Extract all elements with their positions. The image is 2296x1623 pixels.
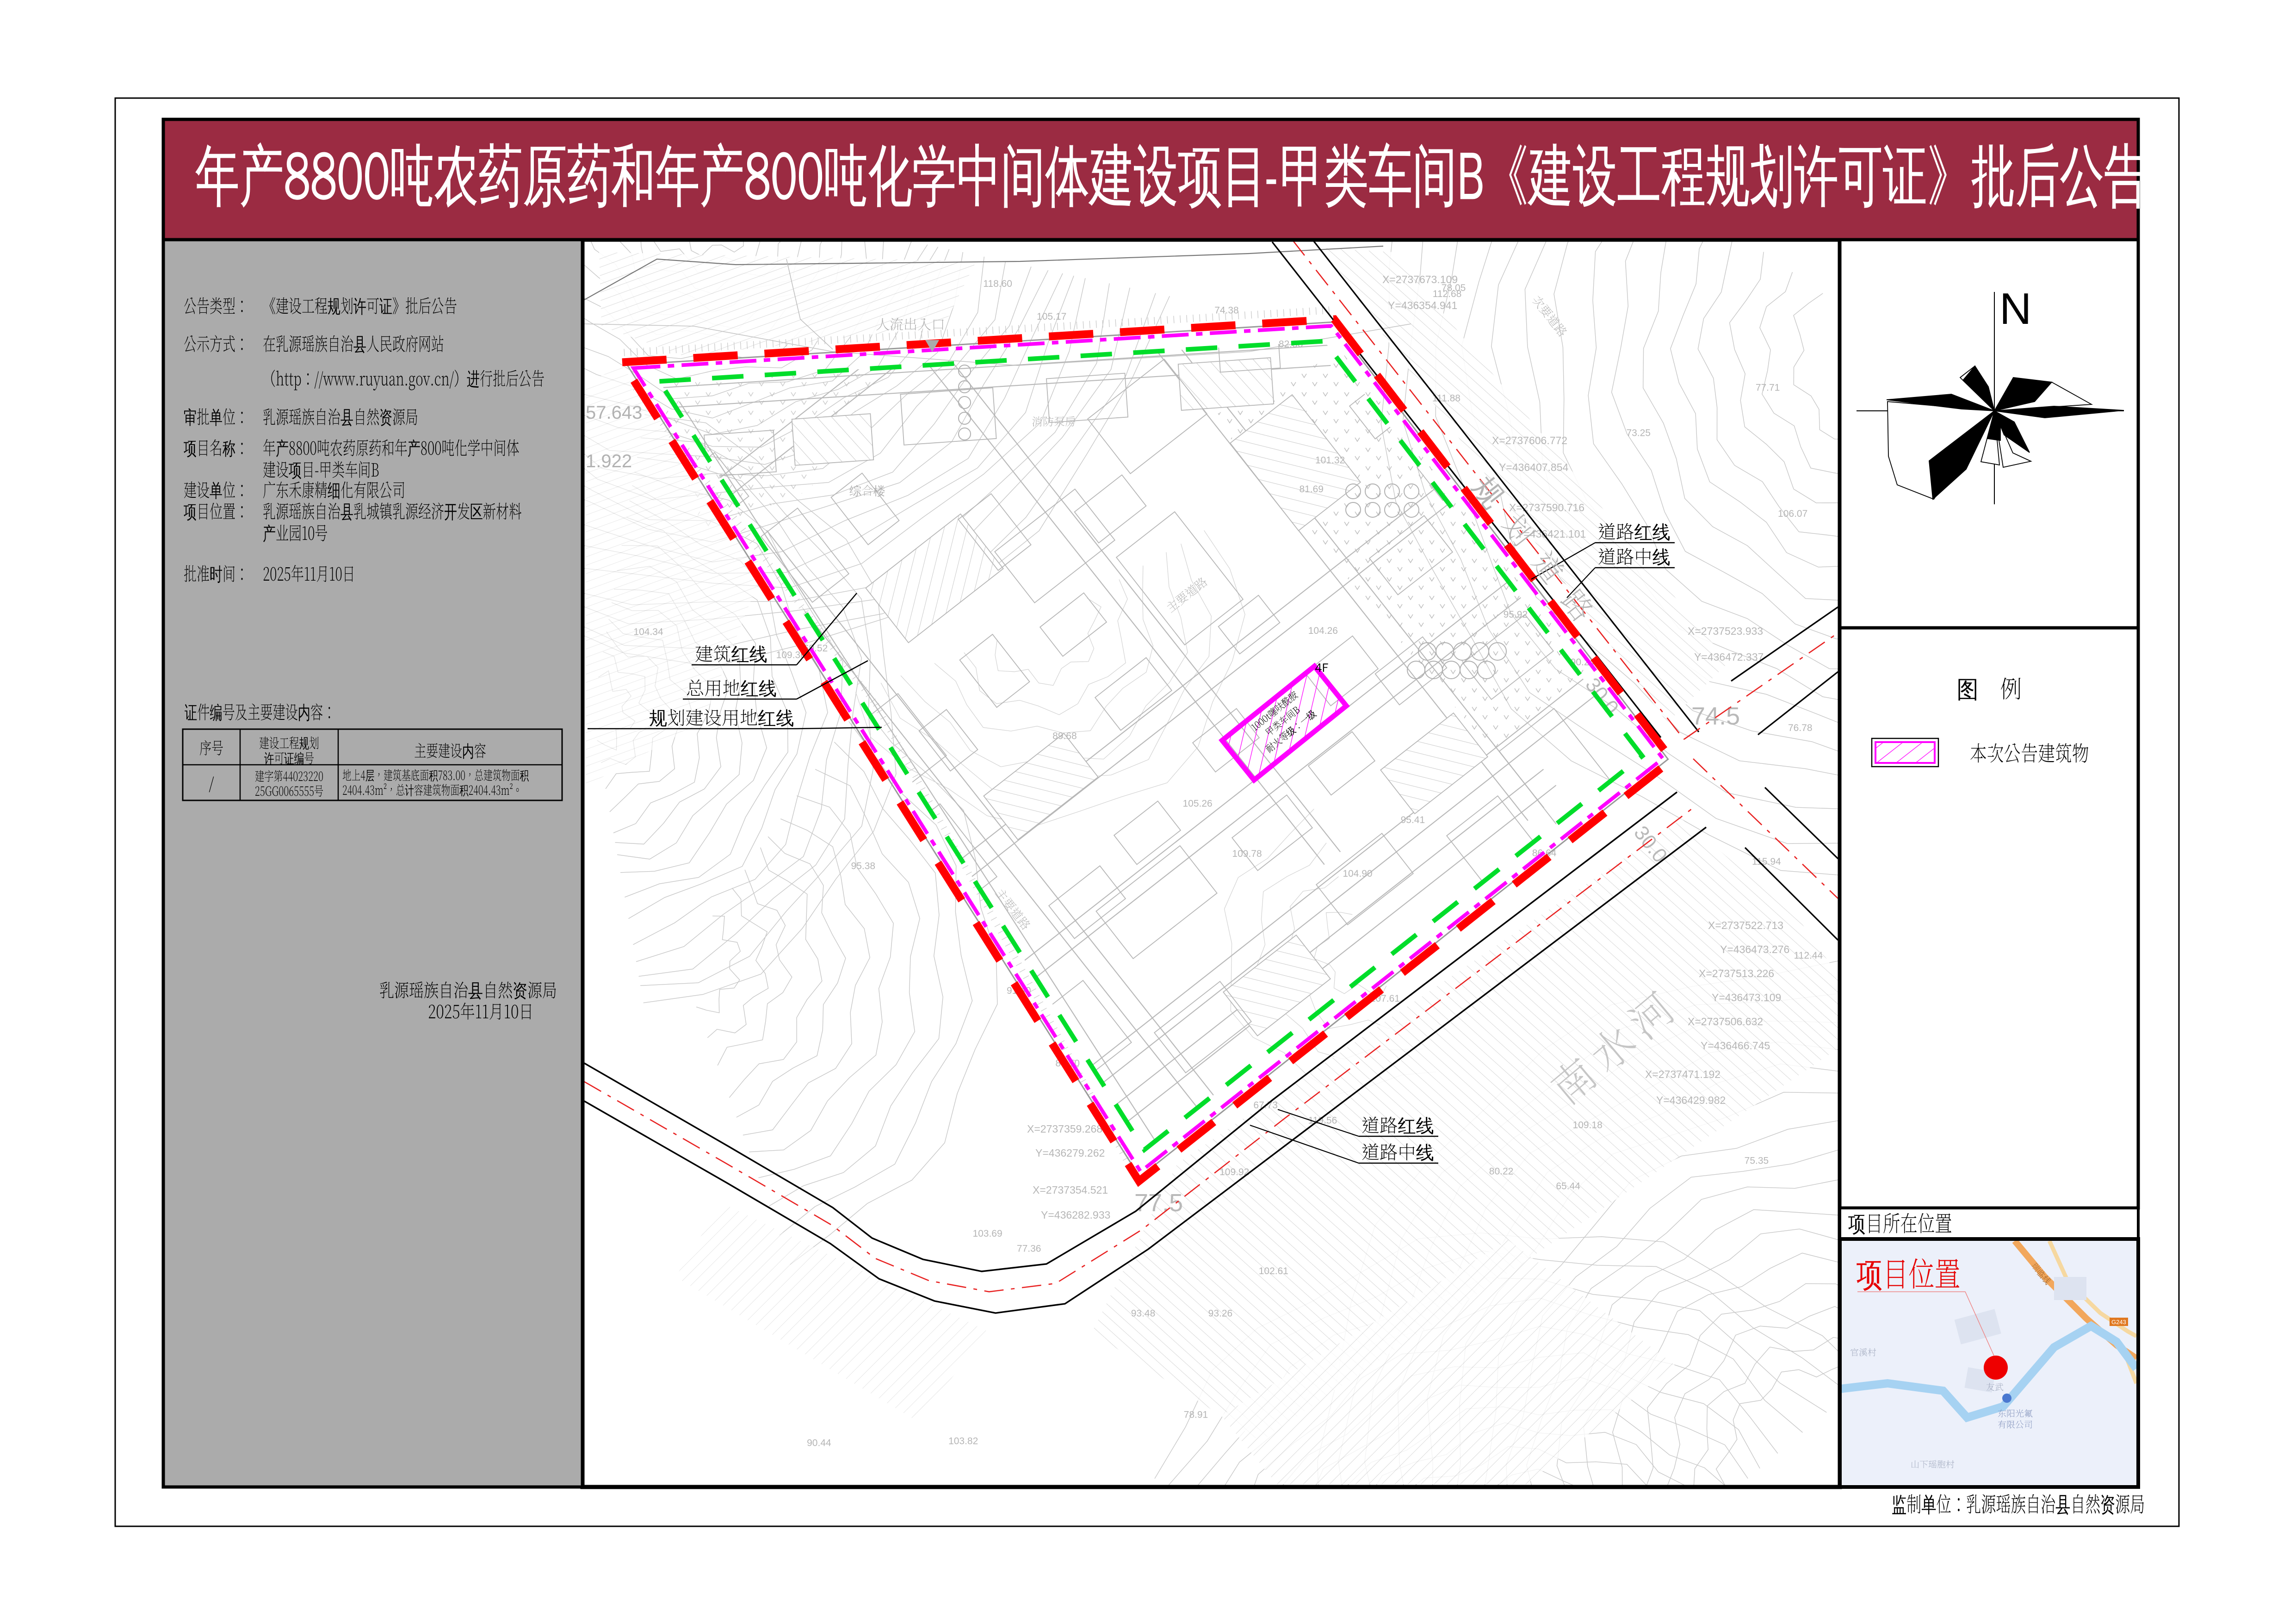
svg-text:X=2737522.713: X=2737522.713 [1708,919,1783,931]
svg-text:93.48: 93.48 [1131,1308,1156,1319]
svg-text:X=2737471.192: X=2737471.192 [1645,1068,1720,1080]
svg-text:103.69: 103.69 [972,1228,1002,1239]
svg-text:118.60: 118.60 [983,279,1012,289]
svg-text:93.26: 93.26 [1208,1308,1233,1319]
svg-text:Y=436407.854: Y=436407.854 [1499,461,1568,473]
svg-text:102.61: 102.61 [1259,1266,1288,1276]
svg-text:95.41: 95.41 [1401,815,1425,825]
svg-text:106.07: 106.07 [1778,508,1807,519]
svg-text:73.25: 73.25 [1626,428,1651,439]
svg-text:1.922: 1.922 [586,451,632,471]
svg-text:81.69: 81.69 [1299,484,1324,495]
svg-text:80.22: 80.22 [1489,1166,1514,1177]
svg-text:109.18: 109.18 [1573,1120,1603,1131]
svg-text:104.34: 104.34 [633,626,663,637]
svg-text:X=2737506.632: X=2737506.632 [1688,1016,1763,1028]
svg-text:Y=436473.276: Y=436473.276 [1720,943,1789,955]
svg-text:103.82: 103.82 [948,1436,978,1447]
svg-text:Y=436282.933: Y=436282.933 [1041,1209,1110,1221]
svg-text:X=2737673.109: X=2737673.109 [1382,273,1458,285]
svg-text:57.643: 57.643 [586,403,642,423]
svg-text:65.44: 65.44 [1556,1181,1580,1191]
svg-text:Y=436354.941: Y=436354.941 [1388,299,1457,311]
svg-text:90.44: 90.44 [807,1438,831,1449]
svg-text:Y=436279.262: Y=436279.262 [1035,1147,1105,1159]
svg-text:105.17: 105.17 [1037,311,1066,322]
svg-text:77.71: 77.71 [1756,383,1780,393]
svg-text:105.26: 105.26 [1182,799,1212,809]
svg-text:N: N [1999,284,2031,334]
svg-text:X=2737359.268: X=2737359.268 [1027,1123,1102,1135]
svg-text:74.38: 74.38 [1214,305,1239,316]
svg-text:95.92: 95.92 [1504,609,1528,620]
svg-text:X=2737354.521: X=2737354.521 [1033,1184,1108,1196]
svg-text:Y=436466.745: Y=436466.745 [1701,1040,1770,1052]
svg-text:104.90: 104.90 [1343,868,1372,879]
svg-text:X=2737606.772: X=2737606.772 [1492,434,1567,446]
svg-text:104.26: 104.26 [1308,626,1338,636]
svg-text:77.36: 77.36 [1017,1243,1041,1254]
svg-text:X=2737523.933: X=2737523.933 [1688,625,1763,637]
svg-text:112.44: 112.44 [1794,950,1823,961]
svg-text:78.91: 78.91 [1184,1410,1208,1420]
svg-text:74.5: 74.5 [1691,702,1740,730]
svg-text:X=2737513.226: X=2737513.226 [1699,967,1774,979]
svg-text:Y=436473.109: Y=436473.109 [1712,991,1781,1004]
svg-text:112.68: 112.68 [1433,289,1462,299]
svg-text:Y=436472.337: Y=436472.337 [1694,651,1764,663]
svg-text:Y=436429.982: Y=436429.982 [1656,1094,1726,1106]
svg-text:89.68: 89.68 [1052,731,1077,742]
svg-text:76.78: 76.78 [1788,723,1813,733]
svg-text:95.38: 95.38 [851,861,876,872]
svg-text:75.35: 75.35 [1745,1155,1769,1166]
svg-text:109.78: 109.78 [1232,849,1262,859]
svg-text:101.32: 101.32 [1315,455,1345,466]
svg-text:G243: G243 [2111,1319,2126,1326]
svg-text:X=2737590.716: X=2737590.716 [1509,502,1584,514]
